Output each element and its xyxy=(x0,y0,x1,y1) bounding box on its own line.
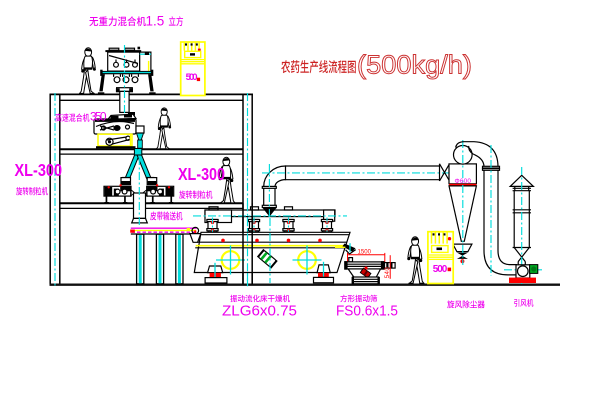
svg-text:1500: 1500 xyxy=(358,250,372,256)
svg-text:500: 500 xyxy=(186,72,198,83)
svg-text:FS0.6x1.5: FS0.6x1.5 xyxy=(336,304,398,320)
svg-text:1.5: 1.5 xyxy=(146,14,165,29)
svg-text:ZLG6x0.75: ZLG6x0.75 xyxy=(222,304,297,320)
svg-text:500: 500 xyxy=(433,264,448,275)
svg-text:Φ600: Φ600 xyxy=(455,178,472,185)
svg-text:(500kg/h): (500kg/h) xyxy=(357,50,472,80)
svg-text:350: 350 xyxy=(90,110,107,124)
svg-text:XL-300: XL-300 xyxy=(15,160,63,180)
svg-text:XL-300: XL-300 xyxy=(178,164,225,184)
svg-text:540: 540 xyxy=(385,267,391,279)
